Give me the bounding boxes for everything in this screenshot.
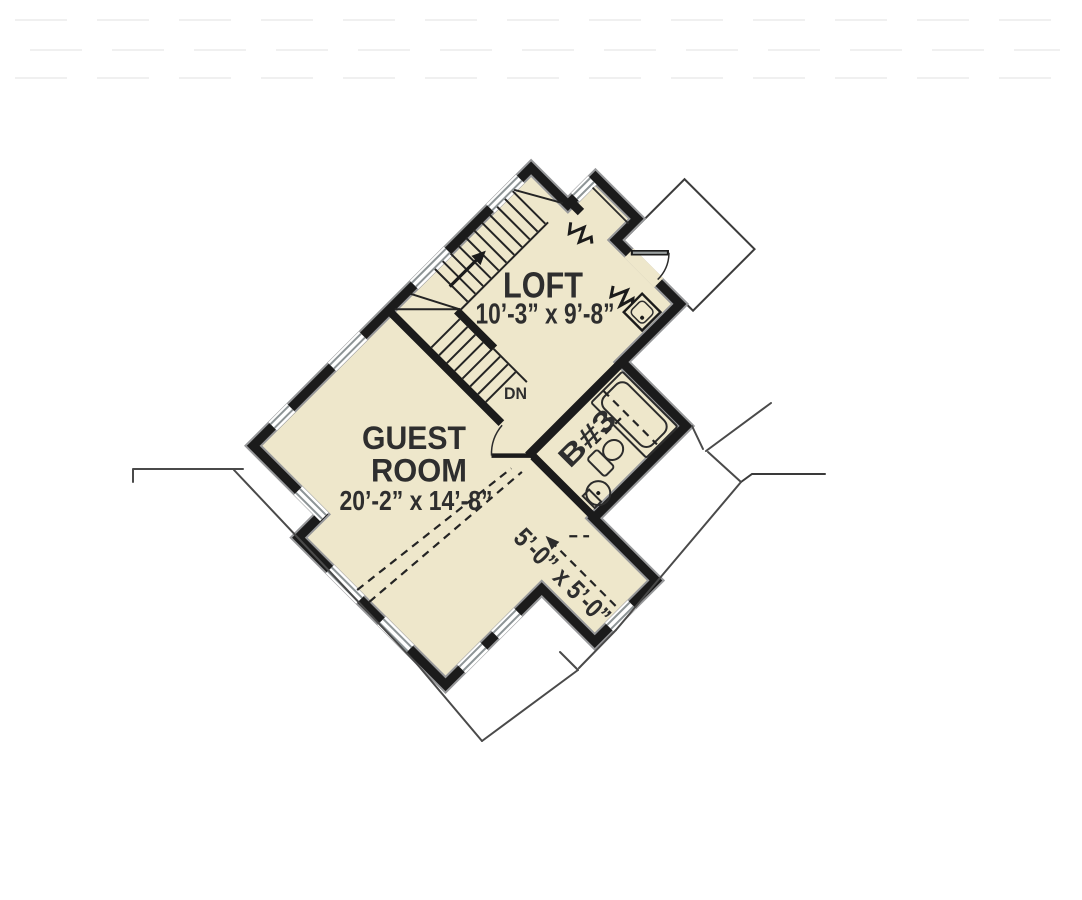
svg-text:10’-3” x 9’-8”: 10’-3” x 9’-8” xyxy=(476,299,615,331)
svg-text:ROOM: ROOM xyxy=(371,453,467,489)
svg-text:20’-2” x 14’-8”: 20’-2” x 14’-8” xyxy=(340,485,493,516)
svg-text:DN: DN xyxy=(504,384,527,403)
svg-text:GUEST: GUEST xyxy=(362,420,466,456)
